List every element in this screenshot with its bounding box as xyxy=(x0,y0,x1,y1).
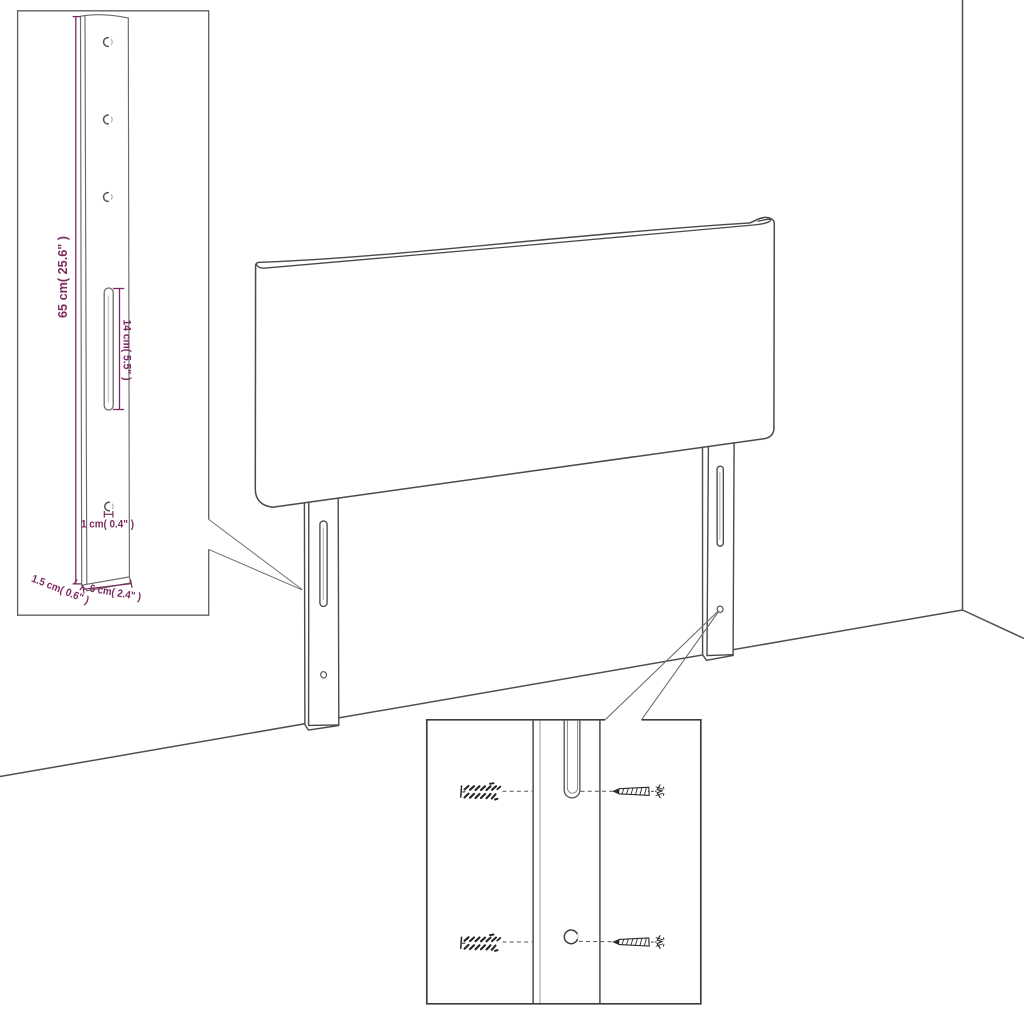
svg-text:65 cm( 25.6" ): 65 cm( 25.6" ) xyxy=(56,236,70,318)
svg-text:1 cm( 0.4" ): 1 cm( 0.4" ) xyxy=(81,519,134,531)
svg-text:14 cm( 5.5" ): 14 cm( 5.5" ) xyxy=(121,320,133,381)
